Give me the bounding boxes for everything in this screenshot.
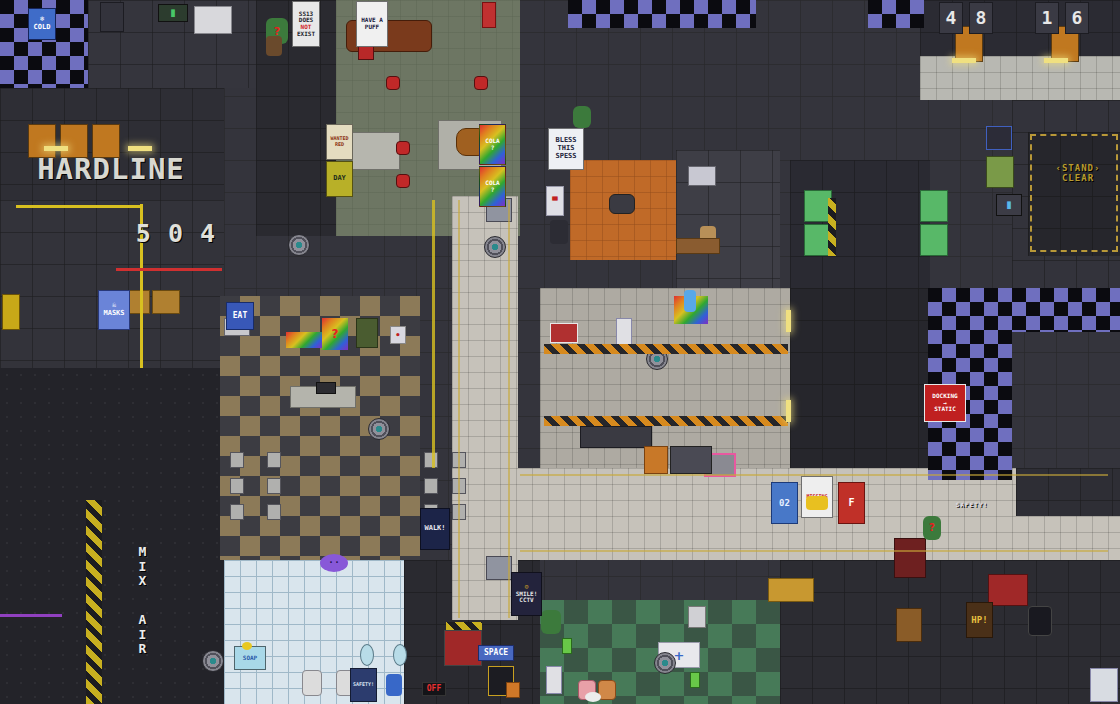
office-desk[interactable] [676,238,720,254]
space-right-upper [1012,288,1120,332]
floor-text-mix: MIX [130,536,156,598]
counter-rainbow[interactable] [286,332,322,348]
guide-line-b [508,200,510,618]
wall-light-d [786,400,791,422]
poster-wanted-red: WANTEDRED [326,124,353,160]
docking-static-sign-line-2: STATIC [934,406,956,413]
cargo-machine[interactable] [670,446,712,474]
console-green[interactable]: ▮ [158,4,188,22]
toilet-a[interactable] [302,670,322,696]
docking-static-sign: DOCKING→STATIC [924,384,966,422]
potted-plant-chapel[interactable] [573,106,591,128]
cola-vending-machine-b-line-1: ? [491,187,495,194]
floor-text-stand-clear: ‹STAND›CLEAR [1038,160,1118,186]
poster-day: DAY [326,161,353,197]
water-cooler-a[interactable] [616,318,632,346]
poster-bless-this-spess: BLESSTHISSPESS [548,128,584,170]
floor-text-air-line-2: R [139,642,148,657]
jar-red[interactable]: • [390,326,406,344]
wardrobe-brown[interactable] [896,608,922,642]
mech-green[interactable] [986,156,1014,188]
bar-stool-a[interactable] [386,76,400,90]
floor-text-safety-line-0: SAFETY! [956,502,988,509]
cola-vending-machine-b[interactable]: COLA? [479,166,506,207]
pipe-purple-h [0,614,62,617]
potted-plant-medbay[interactable] [541,610,561,634]
sign-space: SPACE [478,645,514,661]
poster-day-line-0: DAY [333,175,346,183]
locker-yellow[interactable] [2,294,20,330]
jar-red-glyph: • [395,331,401,340]
fax-machine[interactable] [688,166,716,186]
bot-orange[interactable] [506,682,520,698]
sign-eat-line-0: EAT [233,312,247,321]
locker-fire[interactable]: F [838,482,865,524]
machine-white[interactable] [194,6,232,34]
person-armored[interactable] [1028,606,1052,636]
poster-ss13-does-not-exist-line-3: EXIST [297,31,315,38]
locker-o2-line-0: 02 [779,498,790,508]
extinguisher-blue[interactable] [386,674,402,696]
cargo-crate-orange[interactable] [644,446,668,474]
gold-crate[interactable] [768,578,814,602]
vendor-green[interactable] [356,318,378,348]
soap-dispenser[interactable]: SOAP [234,646,266,670]
potted-plant-query-b[interactable]: ? [923,516,941,540]
space-small-top [868,0,924,28]
hazard-stripe-atmos [86,500,102,704]
wall-plate-1-line-0: 1 [1042,8,1053,28]
fire-axe-cabinet[interactable] [550,323,578,343]
guide-line-a [458,200,460,618]
potted-plant-query-b-glyph: ? [929,523,935,533]
floor-text-504: 5 0 4 [114,218,238,250]
hazard-stripe-cargo-a [544,344,788,354]
vent-d [368,418,390,440]
soda-can-a[interactable] [562,638,572,654]
floor-text-air: AIR [130,604,156,666]
red-rocket[interactable] [482,2,496,28]
wall-plate-6-line-0: 6 [1072,8,1083,28]
maroon-double-door[interactable] [894,538,926,578]
poster-hp: HP! [966,602,993,638]
locker-fire-line-0: F [848,497,854,508]
maintenance-right-floor [790,288,930,470]
poster-safety: SAFETY! [350,668,377,702]
pipe-yellow-h [16,205,142,208]
chair-10[interactable] [267,504,281,520]
bottom-right-floor [780,560,1120,704]
pipe-red-h [116,268,222,271]
poster-have-a-puff-line-1: PUFF [365,24,379,31]
cargo-bay-floor [540,288,790,470]
hazard-stripe-cargo-b [544,416,788,426]
chair-2[interactable] [267,452,281,468]
floor-text-504-line-0: 5 0 4 [136,220,216,248]
wall-light-c [786,310,791,332]
cryo-pod-d[interactable] [920,224,948,256]
corridor-topright [920,56,1120,100]
console-green-glyph: ▮ [170,8,176,18]
cold-sign: ❄COLD [28,8,56,40]
poster-have-a-puff: HAVE APUFF [356,1,388,47]
floor-text-mix-line-0: M [139,545,148,560]
poster-wanted-red-line-1: RED [335,142,344,148]
sign-space-line-0: SPACE [484,649,508,658]
floor-text-air-line-0: A [139,613,148,628]
person-chaplain[interactable] [550,220,568,244]
wall-light-f [1044,58,1068,63]
wall-plate-1: 1 [1035,2,1059,34]
potted-plant-query-a-glyph: ? [274,26,280,37]
chair-5[interactable] [230,478,244,494]
floor-text-hardline-line-0: HARDLINE [37,153,185,185]
display-off: OFF [422,682,446,696]
wall-plate-4-line-0: 4 [946,8,957,28]
poster-walk-line-0: WALK! [424,525,445,533]
poster-walk: WALK! [420,508,450,550]
bed-red-chapel-glyph: ▀ [552,198,557,205]
chair-7[interactable] [424,478,438,494]
sign-eat: EAT [226,302,254,330]
hazard-stripe-mid [828,198,836,256]
hazard-stripe-recharger [446,622,482,630]
water-cooler-b[interactable] [546,666,562,694]
wall-plate-8: 8 [969,2,993,34]
bar-stool-c[interactable] [396,141,410,155]
pipe-yellow-v2 [432,200,435,468]
poster-hp-line-0: HP! [971,615,987,625]
vent-e [202,650,224,672]
mech-dark-a[interactable] [100,2,124,32]
bed-red-chapel[interactable]: ▀ [546,186,564,216]
vent-a [288,234,310,256]
floor-text-mix-line-2: X [139,574,148,589]
person-patron[interactable] [266,36,282,56]
vent-f [654,652,676,674]
floor-text-stand-clear-line-0: ‹STAND› [1056,163,1101,173]
floor-text-air-line-1: I [139,628,148,643]
locker-o2[interactable]: 02 [771,482,798,524]
floor-text-hardline: HARDLINE [0,150,222,188]
floor-text-stand-clear-line-1: CLEAR [1062,173,1094,183]
vendor-mystery[interactable]: ? [322,318,348,350]
missing-poster-photo [806,496,828,510]
vendor-mystery-glyph: ? [332,328,339,340]
soda-can-b[interactable] [690,672,700,688]
slime-purple-glyph: · · [330,559,339,567]
guide-line-h2 [520,550,1108,552]
space-topband [568,0,756,28]
console-blue-glyph: ▮ [1006,200,1012,210]
poster-bless-this-spess-line-2: SPESS [555,153,576,161]
bar-stool-b[interactable] [474,76,488,90]
poster-smile-cctv-line-2: CCTV [519,597,533,604]
recharger-red[interactable] [444,630,482,666]
lockers-red[interactable] [988,574,1028,606]
floor-text-mix-line-1: I [139,560,148,575]
wall-plate-8-line-0: 8 [976,8,987,28]
bar-table-a[interactable] [352,132,400,170]
conveyor-belt[interactable] [580,426,652,448]
station-map: ??· ·?•+▮▮▀❄COLDSS13DOESNOTEXISTHAVE APU… [0,0,1120,704]
mirror-b[interactable] [393,644,407,666]
chapel-altar[interactable] [609,194,635,214]
gold-floor-frame [1030,134,1118,252]
chair-6[interactable] [267,478,281,494]
water-bottle-blue[interactable] [684,290,696,312]
masks-sign: ☠MASKS [98,290,130,330]
wooden-crate-b[interactable] [152,290,180,314]
slime-purple[interactable]: · · [320,554,348,572]
office-chair-white[interactable] [688,606,706,628]
wall-light-e [952,58,976,63]
soap-dispenser-line-0: SOAP [243,655,257,662]
cryo-pod-c[interactable] [920,190,948,222]
console-blue[interactable]: ▮ [996,194,1022,216]
rubber-duck [242,642,252,650]
wall-plate-4: 4 [939,2,963,34]
vent-b [484,236,506,258]
chair-3[interactable] [424,452,438,468]
mirror-a[interactable] [360,644,374,666]
display-off-line-0: OFF [427,685,441,694]
atmospherics-floor [0,368,224,704]
poster-smile-cctv: ☺SMILE!CCTV [511,572,542,616]
radio[interactable] [316,382,336,394]
cola-vending-machine-a[interactable]: COLA? [479,124,506,165]
masks-sign-line-1: MASKS [103,310,124,318]
floor-text-safety: SAFETY! [955,500,989,510]
cold-sign-line-1: COLD [34,24,51,32]
cola-vending-machine-a-line-1: ? [491,145,495,152]
chair-1[interactable] [230,452,244,468]
poster-safety-line-0: SAFETY! [353,682,374,688]
chair-9[interactable] [230,504,244,520]
bed-white[interactable] [1090,668,1118,702]
wall-plate-6: 6 [1065,2,1089,34]
mech-dark-blue[interactable] [986,126,1012,150]
bar-stool-d[interactable] [396,174,410,188]
poster-ss13-does-not-exist: SS13DOESNOTEXIST [292,1,320,47]
cat-white[interactable] [585,692,601,702]
